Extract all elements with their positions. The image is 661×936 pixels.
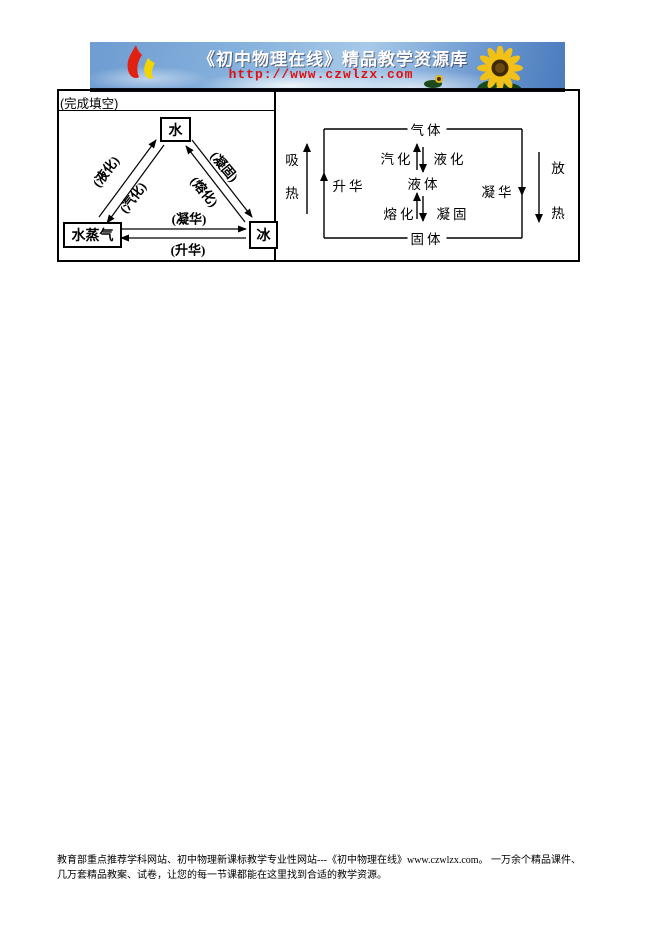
process-vaporization: 汽化 xyxy=(378,148,417,168)
worksheet-table: (完成填空) 水 水蒸气 冰 xyxy=(57,89,580,262)
state-gas: 气体 xyxy=(408,119,447,139)
process-sublimation: 升华 xyxy=(330,175,369,195)
triangle-diagram: 水 水蒸气 冰 (液化) (汽化) (凝固) (熔化) (凝华) (升华) xyxy=(59,111,274,259)
process-melting: 熔化 xyxy=(381,203,420,223)
flame-logo-icon xyxy=(118,44,162,84)
absorb-heat-label: 吸热 xyxy=(284,144,300,210)
state-diagram: 气体 液体 固体 汽化 液化 熔化 凝固 升华 凝华 吸热 放热 xyxy=(276,91,578,259)
document-page: 《初中物理在线》精品教学资源库 http://www.czwlzx.com xyxy=(0,0,661,936)
node-ice: 冰 xyxy=(249,221,278,249)
process-deposition: 凝华 xyxy=(479,181,518,201)
sunflower-icon xyxy=(468,46,532,92)
footer-line-2: 几万套精品教案、试卷，让您的每一节课都能在这里找到合适的教学资源。 xyxy=(57,870,387,881)
footer-text: 教育部重点推荐学科网站、初中物理新课标教学专业性网站---《初中物理在线》www… xyxy=(57,853,617,883)
label-sublimation: (升华) xyxy=(171,240,206,259)
foliage-icon xyxy=(423,72,453,88)
worksheet-prompt: (完成填空) xyxy=(60,93,118,112)
node-water: 水 xyxy=(160,117,191,142)
process-solidification: 凝固 xyxy=(434,203,473,223)
node-vapor: 水蒸气 xyxy=(63,222,122,248)
state-solid: 固体 xyxy=(408,228,447,248)
process-liquefaction: 液化 xyxy=(431,148,470,168)
release-heat-label: 放热 xyxy=(550,146,566,236)
footer-line-1: 教育部重点推荐学科网站、初中物理新课标教学专业性网站---《初中物理在线》www… xyxy=(57,855,581,866)
label-deposition: (凝华) xyxy=(172,209,207,228)
site-banner[interactable]: 《初中物理在线》精品教学资源库 http://www.czwlzx.com xyxy=(90,42,565,92)
state-liquid: 液体 xyxy=(405,173,444,193)
